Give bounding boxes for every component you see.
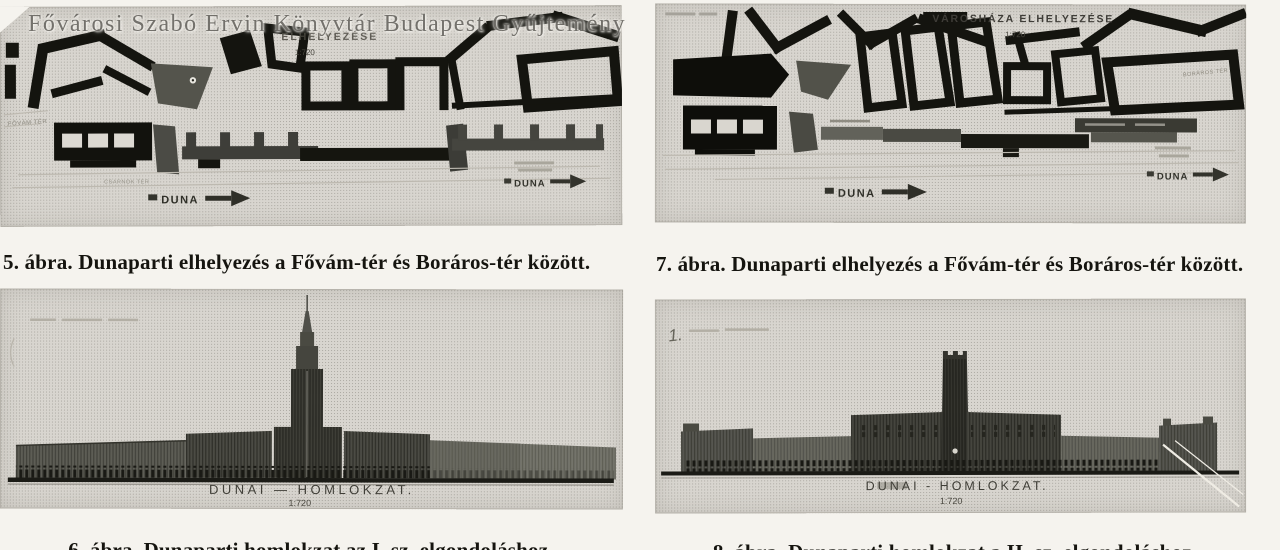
elevation-label: DUNAI — HOMLOKZAT. [209, 482, 415, 497]
figure-6-elevation-panel: DUNAI — HOMLOKZAT. 1:720 [0, 288, 623, 509]
duna-arrow-icon: DUNA [1147, 146, 1229, 182]
tower [291, 295, 323, 478]
city-blocks [673, 11, 1241, 112]
map-scale: 1:720 [1005, 30, 1026, 39]
handwritten-note: 1. [667, 325, 683, 345]
scan-corner [0, 7, 30, 33]
square-label: FŐVÁM TÉR [8, 118, 48, 128]
figure-5-map-drawing: FŐVÁM TÉR CSARNOK TÉR ELHELYEZÉSE 1:720 … [0, 5, 622, 227]
figure-8-caption: 8. ábra. Dunaparti homlokzat a II. sz. e… [655, 540, 1255, 550]
figure-7-map-panel: BORÁROS TÉR VÁROSHÁZA ELHELYEZÉSE 1:720 … [655, 3, 1246, 223]
arcade [16, 465, 430, 478]
square-label: BORÁROS TÉR [1183, 67, 1229, 79]
figure-8-elevation-drawing: 1. [655, 298, 1246, 513]
building-elevation [661, 350, 1239, 478]
arcade [685, 460, 1159, 472]
duna-arrow-icon: DUNA [148, 190, 250, 206]
library-watermark: Fővárosi Szabó Ervin Könyvtár Budapest G… [28, 11, 626, 38]
river-label: DUNA [514, 178, 545, 189]
pencil-notes [665, 12, 717, 15]
riverfront-band [54, 121, 604, 174]
duna-arrow-icon: DUNA [504, 161, 586, 189]
map-scale: 1:720 [295, 48, 316, 57]
river-label: DUNA [1157, 171, 1188, 182]
elevation-scale: 1:720 [940, 496, 963, 506]
figure-6-caption: 6. ábra. Dunaparti homlokzat az I. sz. e… [0, 538, 622, 550]
pencil-notes [11, 318, 139, 366]
river-label: DUNA [161, 194, 199, 206]
river-label: DUNA [838, 188, 876, 200]
figure-6-elevation-drawing: DUNAI — HOMLOKZAT. 1:720 [0, 288, 623, 509]
elevation-label: DUNAI - HOMLOKZAT. [866, 479, 1049, 493]
figure-7-map-drawing: BORÁROS TÉR VÁROSHÁZA ELHELYEZÉSE 1:720 … [655, 3, 1246, 223]
tower [941, 351, 969, 472]
building-elevation [8, 294, 616, 485]
elevation-scale: 1:720 [289, 498, 312, 508]
scanned-page: FŐVÁM TÉR CSARNOK TÉR ELHELYEZÉSE 1:720 … [0, 0, 1280, 550]
figure-5-caption: 5. ábra. Dunaparti elhelyezés a Fővám-té… [3, 250, 590, 275]
park-triangle [796, 61, 851, 100]
duna-arrow-icon: DUNA [825, 184, 927, 200]
district-label: CSARNOK TÉR [104, 178, 149, 185]
figure-5-map-panel: FŐVÁM TÉR CSARNOK TÉR ELHELYEZÉSE 1:720 … [0, 5, 622, 227]
pencil-notes [689, 328, 769, 332]
figure-8-elevation-panel: 1. [655, 298, 1246, 513]
map-title: VÁROSHÁZA ELHELYEZÉSE [932, 12, 1114, 25]
park-triangle [151, 63, 213, 109]
figure-7-caption: 7. ábra. Dunaparti elhelyezés a Fővám-té… [656, 252, 1243, 277]
